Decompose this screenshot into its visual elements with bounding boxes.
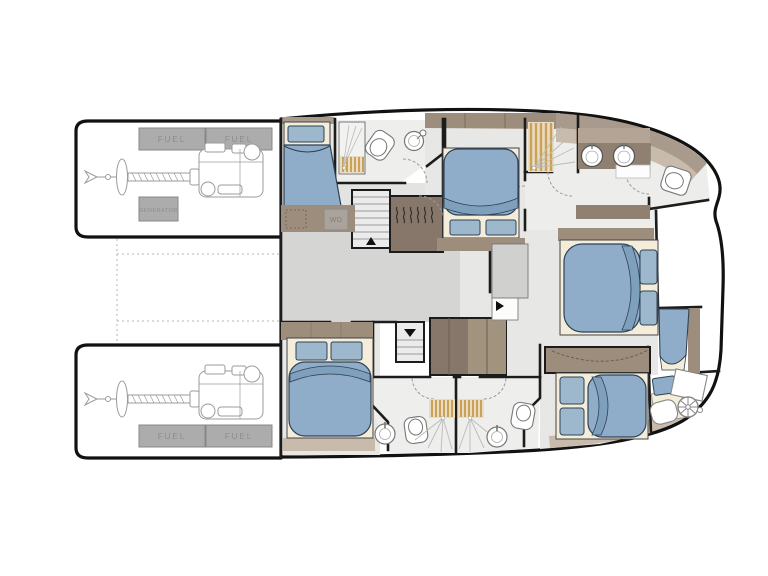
pillow <box>560 377 584 404</box>
bow-lounge <box>659 308 700 373</box>
fuel-tank-label: FUEL <box>158 135 186 144</box>
cabin-vip-forward <box>437 148 525 251</box>
fuel-tank-label: FUEL <box>225 135 253 144</box>
pillow <box>331 342 362 360</box>
pillow <box>640 250 657 284</box>
cabin-starboard-forward <box>556 373 648 439</box>
toilet <box>510 401 536 430</box>
pillow <box>486 220 516 235</box>
wardrobe <box>390 196 443 252</box>
cabin-port-aft <box>281 322 373 438</box>
cabinet <box>576 205 650 219</box>
cabin-bow-crew <box>649 369 708 426</box>
generator-label: GENERATOR <box>139 208 178 214</box>
vanity-back <box>578 128 650 143</box>
stairs-down <box>396 322 424 362</box>
pillow <box>450 220 480 235</box>
bow-cabinet <box>688 308 700 373</box>
vanity-shelf <box>616 165 650 178</box>
pillow <box>296 342 327 360</box>
lounge-seat-cushion <box>659 309 689 364</box>
washer-dryer-label: WD <box>330 217 343 224</box>
toilet <box>403 416 428 445</box>
cabinet-bench <box>545 347 650 373</box>
cabinet <box>281 322 373 340</box>
aft-platform-guides <box>117 239 280 343</box>
fuel-tank-label: FUEL <box>225 432 253 441</box>
fuel-tank-label: FUEL <box>158 432 186 441</box>
locker <box>492 244 528 298</box>
trim-port-aft-shelf <box>283 438 375 451</box>
catamaran-deck-plan: FUEL FUEL GENERATOR FUEL FUEL <box>0 0 768 576</box>
deck-plan-page: FUEL FUEL GENERATOR FUEL FUEL <box>0 0 768 576</box>
cabinet <box>558 228 654 241</box>
pillow <box>288 126 324 142</box>
pillow <box>640 291 657 325</box>
pillow <box>560 408 584 435</box>
